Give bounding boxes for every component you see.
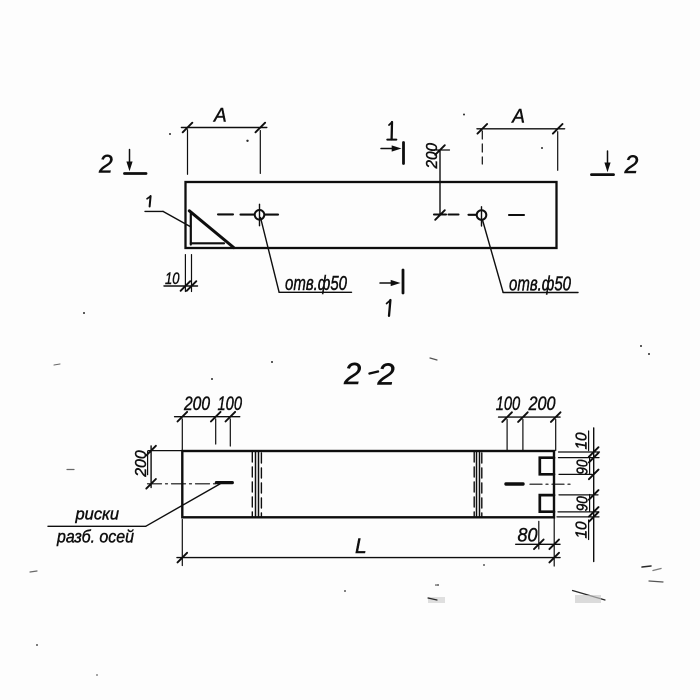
svg-text:2: 2	[377, 357, 395, 392]
svg-text:90: 90	[575, 496, 592, 511]
svg-text:100: 100	[496, 394, 521, 415]
svg-text:10: 10	[165, 270, 180, 288]
svg-text:A: A	[213, 106, 227, 127]
svg-text:L: L	[355, 535, 367, 558]
svg-text:90: 90	[575, 460, 592, 475]
svg-text:100: 100	[218, 394, 243, 415]
svg-text:200: 200	[183, 394, 210, 415]
svg-text:разб. осей: разб. осей	[56, 527, 134, 547]
svg-text:2: 2	[98, 151, 113, 179]
svg-text:2: 2	[343, 356, 361, 391]
svg-text:отв.ф50: отв.ф50	[285, 273, 347, 295]
svg-text:200: 200	[528, 394, 556, 415]
svg-text:10: 10	[574, 521, 591, 538]
svg-text:A: A	[511, 106, 525, 127]
svg-text:отв.ф50: отв.ф50	[509, 274, 571, 296]
svg-text:2: 2	[624, 151, 639, 179]
svg-text:10: 10	[574, 432, 591, 449]
svg-text:80: 80	[518, 524, 538, 546]
svg-text:200: 200	[424, 143, 441, 170]
svg-text:риски: риски	[75, 505, 120, 524]
